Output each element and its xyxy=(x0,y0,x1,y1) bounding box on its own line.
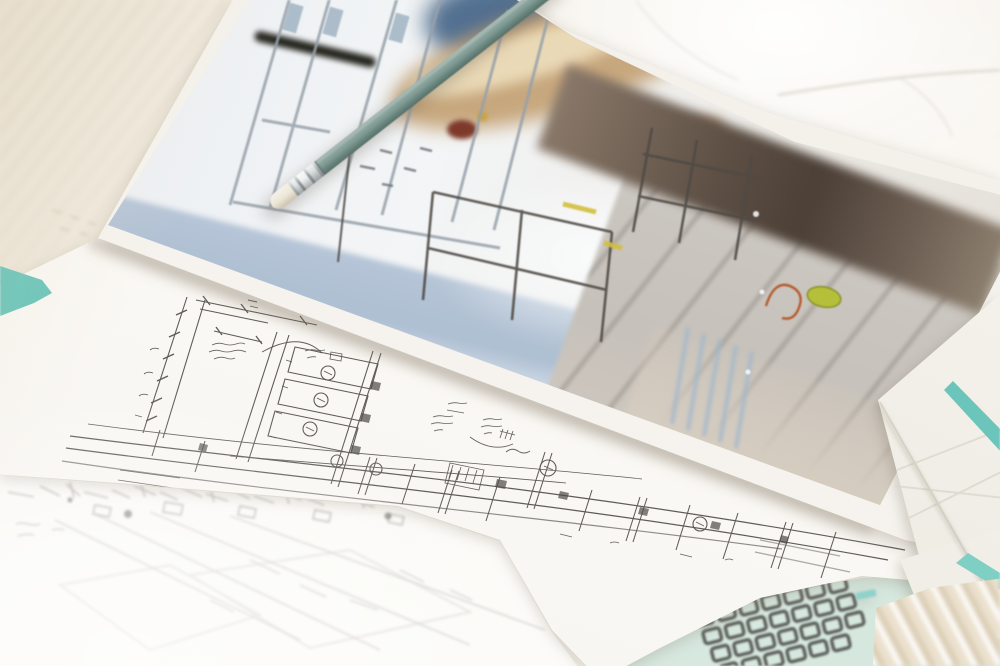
photograph-of-architect-desk xyxy=(0,0,1000,666)
sheet-creases xyxy=(0,0,1000,666)
